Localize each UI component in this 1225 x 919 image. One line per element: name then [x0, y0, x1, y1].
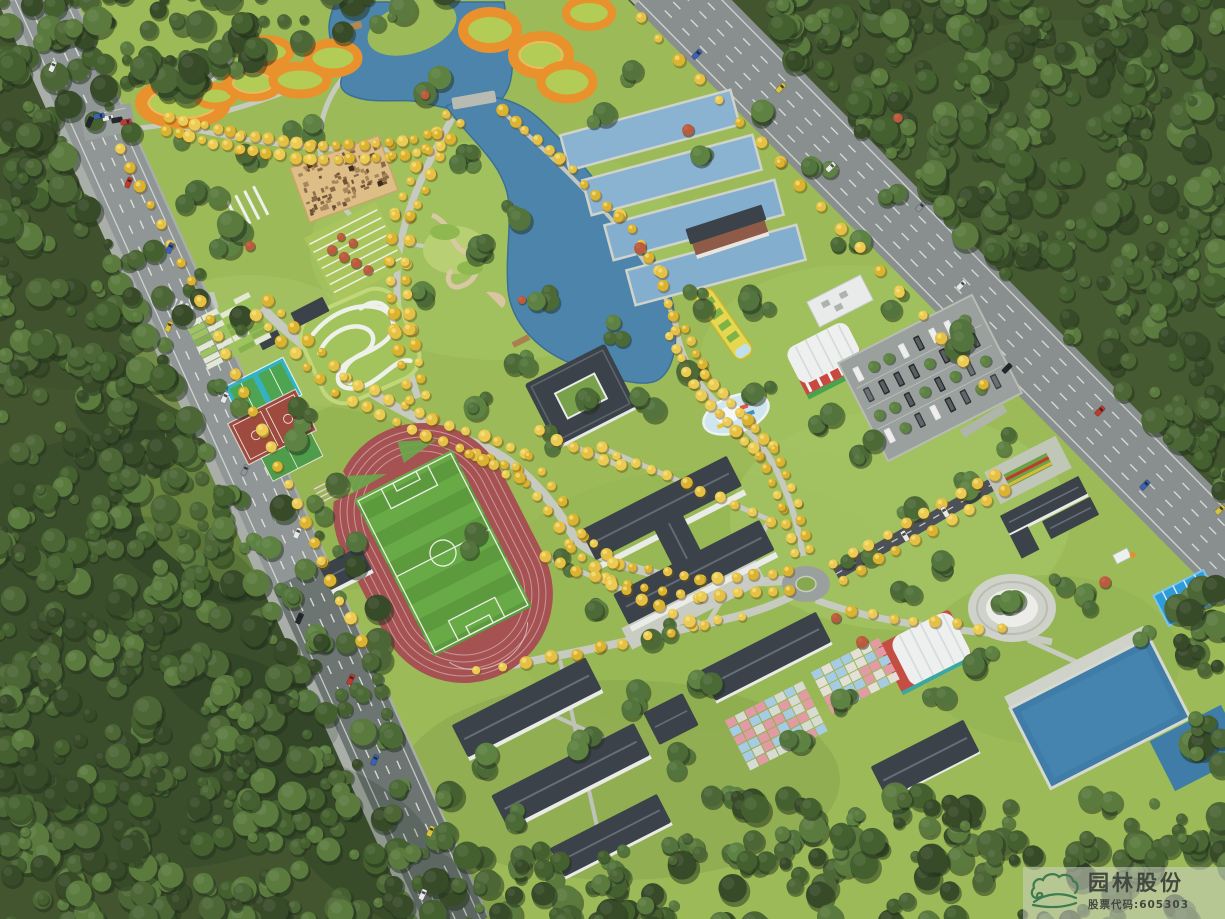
ring-plaza [566, 0, 612, 27]
watermark-company-name: 园林股份 [1088, 872, 1189, 895]
garden-company-logo-icon [1029, 872, 1081, 912]
watermark-stock-code: 股票代码:605303 [1088, 897, 1189, 912]
masterplan-svg [0, 0, 1225, 919]
ring-plaza [308, 43, 358, 73]
aerial-masterplan-rendering: 园林股份 股票代码:605303 [0, 0, 1225, 919]
ring-plaza [463, 12, 517, 48]
ring-plaza [541, 65, 593, 99]
brand-watermark: 园林股份 股票代码:605303 [1023, 867, 1225, 919]
